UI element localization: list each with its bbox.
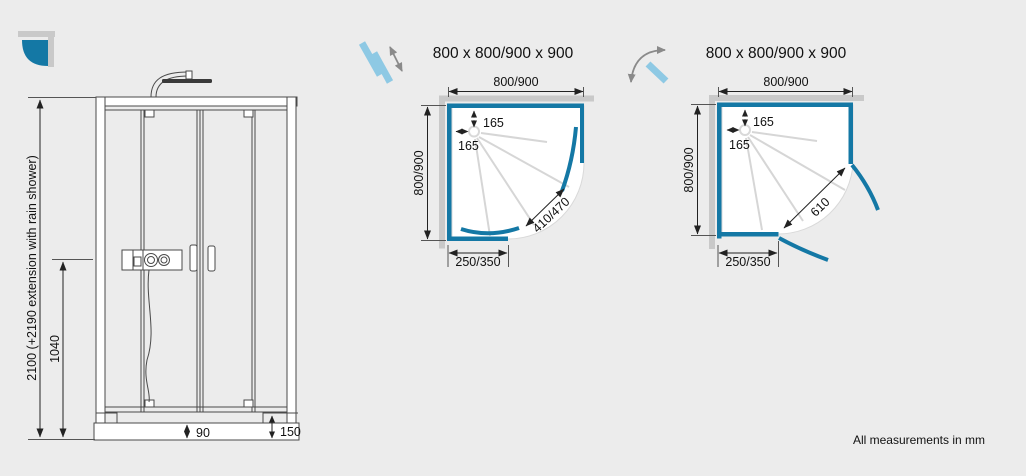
shower-hose	[146, 270, 151, 402]
dim-drain-back-label: 165	[483, 116, 504, 130]
dim-depth-label: 800/900	[412, 150, 426, 195]
mixer-panel	[122, 250, 182, 402]
door-roller	[145, 110, 154, 117]
corner-tray	[722, 105, 853, 234]
brand-logo	[18, 31, 55, 67]
plan-pivot: 800 x 800/900 x 900 800/900 80	[631, 45, 878, 269]
dim-drain-back-label: 165	[753, 115, 774, 129]
wall-band-left	[439, 96, 445, 249]
mixer-knob	[159, 255, 170, 266]
plan-pivot-title: 800 x 800/900 x 900	[706, 45, 847, 62]
dim-tray-height-label: 150	[280, 425, 301, 439]
dim-valve-height-label: 1040	[48, 335, 62, 363]
elevation-view: 2100 (+2190 extension with rain shower) …	[25, 71, 301, 440]
fixed-panel-bottom	[722, 232, 779, 237]
dim-total-height-label: 2100 (+2190 extension with rain shower)	[25, 155, 39, 380]
diagram-canvas: 2100 (+2190 extension with rain shower) …	[0, 0, 1026, 476]
sliding-door-icon	[362, 43, 402, 82]
dim-side-panel-label: 250/350	[455, 255, 500, 269]
logo-wall-right	[48, 31, 54, 67]
door-roller	[244, 110, 253, 117]
glass-wall-left	[447, 104, 452, 242]
dim-side-panel-label: 250/350	[725, 255, 770, 269]
dim-depth-label: 800/900	[682, 147, 696, 192]
glass-wall-top	[447, 104, 584, 109]
dim-width-label: 800/900	[493, 75, 538, 89]
fixed-panel-right	[580, 108, 584, 163]
mixer-knob	[145, 254, 158, 267]
wall-band-top	[439, 96, 594, 102]
fixed-panel-right	[849, 107, 854, 164]
pivot-door-icon	[631, 50, 666, 82]
plan-sliding-title: 800 x 800/900 x 900	[433, 45, 574, 62]
plan-sliding: 800 x 800/900 x 900 800/900 80	[362, 43, 594, 269]
rain-shower-head	[151, 71, 212, 97]
drain-outlet	[740, 125, 750, 135]
dim-tray-inner-label: 90	[196, 426, 210, 440]
wall-band-top	[709, 95, 864, 101]
door-handle	[208, 246, 215, 271]
door-guide	[244, 400, 253, 407]
pivot-door-open-bottom	[779, 238, 828, 260]
wall-band-left	[709, 95, 715, 249]
shower-dimension-diagram: 2100 (+2190 extension with rain shower) …	[0, 0, 1026, 476]
logo-quadrant-icon	[22, 40, 48, 66]
fixed-panel-bottom	[447, 237, 508, 242]
door-handle	[190, 245, 197, 271]
glass-wall-left	[717, 103, 722, 239]
dim-drain-side-label: 165	[729, 138, 750, 152]
drain-outlet	[469, 127, 479, 137]
glass-wall-top	[717, 103, 853, 108]
dim-width-label: 800/900	[763, 75, 808, 89]
dim-drain-side-label: 165	[458, 139, 479, 153]
footer-note: All measurements in mm	[853, 433, 985, 447]
pivot-door-open-right	[852, 165, 878, 210]
slide-direction-arrow	[390, 47, 402, 71]
